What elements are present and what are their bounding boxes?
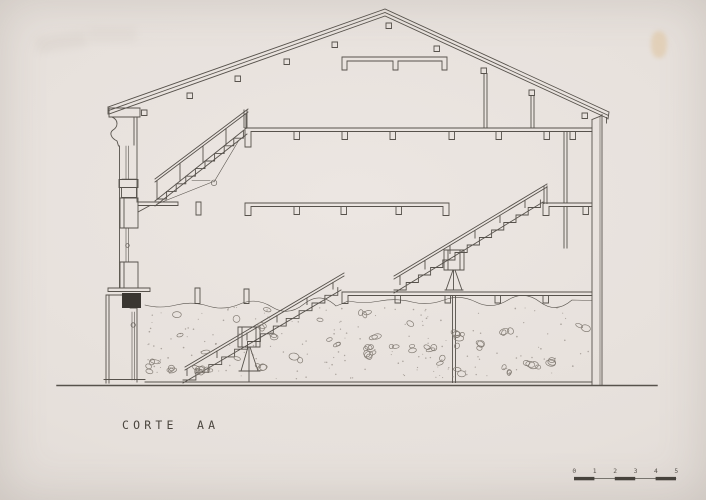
ground-stair-flight <box>183 273 344 383</box>
cut-beam <box>122 293 141 308</box>
scale-label: 5 <box>674 468 678 475</box>
foundation-top-wavy-line <box>145 295 592 311</box>
scale-block <box>656 477 676 480</box>
first-floor <box>342 292 592 304</box>
roof <box>108 9 609 128</box>
scale-label: 0 <box>572 468 576 475</box>
right-wall-lines <box>592 115 602 386</box>
scale-label: 3 <box>634 468 638 475</box>
upper-stair-trestle <box>444 250 464 383</box>
upper-stair <box>394 184 547 383</box>
scale-bar-labels: 0 1 2 3 4 5 <box>572 468 678 475</box>
strut-pin <box>211 180 217 186</box>
title-word-corte: CORTE <box>122 418 178 432</box>
ground-stair <box>183 273 344 383</box>
roof-hanger-posts <box>244 74 534 128</box>
section-drawing: CORTE AA 0 1 2 3 4 5 <box>0 0 706 500</box>
second-floor-left <box>245 203 449 216</box>
title-word-aa: AA <box>197 418 219 432</box>
scale-bar: 0 1 2 3 4 5 <box>572 468 678 480</box>
left-wall-outline <box>104 108 150 383</box>
scale-block <box>574 477 594 480</box>
collar-beam <box>342 57 447 70</box>
drawing-sheet: CORTE AA 0 1 2 3 4 5 <box>0 0 706 500</box>
scale-block <box>615 477 635 480</box>
rubble-stipple-texture <box>145 307 591 380</box>
scale-bar-blocks <box>574 477 676 480</box>
interior-posts <box>195 132 567 304</box>
roof-purlins <box>142 23 588 119</box>
right-wall <box>592 115 602 386</box>
floors <box>195 128 592 304</box>
attic-floor <box>245 128 592 147</box>
scale-label: 4 <box>654 468 658 475</box>
title: CORTE AA <box>122 418 219 432</box>
attic-stair <box>155 109 248 206</box>
ink-layer <box>57 9 657 386</box>
left-wall <box>104 108 201 383</box>
scale-label: 1 <box>593 468 597 475</box>
ground-stair-trestle <box>238 327 260 382</box>
scale-label: 2 <box>613 468 617 475</box>
upper-stair-flight <box>394 184 547 293</box>
attic-stair-flight <box>155 109 248 206</box>
ground <box>57 295 657 385</box>
second-floor-right <box>543 203 592 216</box>
gallery-landing <box>138 202 201 215</box>
